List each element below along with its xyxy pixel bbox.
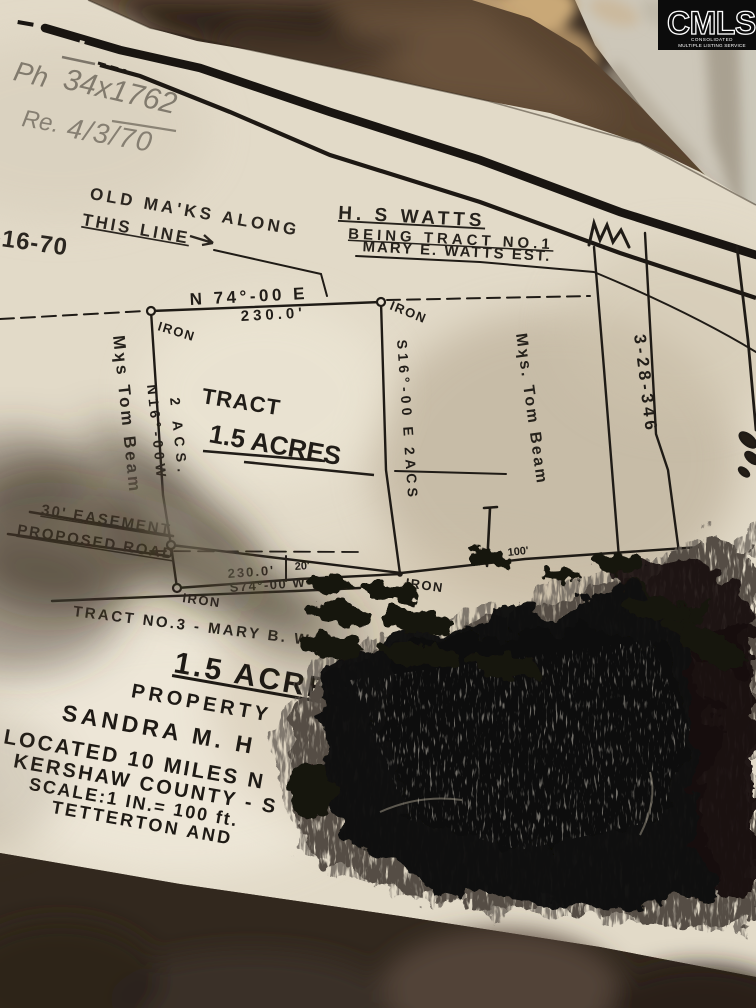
svg-text:CONSOLIDATED: CONSOLIDATED	[691, 37, 733, 42]
svg-text:100': 100'	[507, 545, 529, 559]
svg-text:230.0': 230.0'	[240, 305, 306, 325]
svg-text:20': 20'	[294, 560, 310, 573]
svg-text:CMLS: CMLS	[667, 5, 756, 41]
svg-text:MULTIPLE LISTING SERVICE: MULTIPLE LISTING SERVICE	[678, 43, 745, 48]
